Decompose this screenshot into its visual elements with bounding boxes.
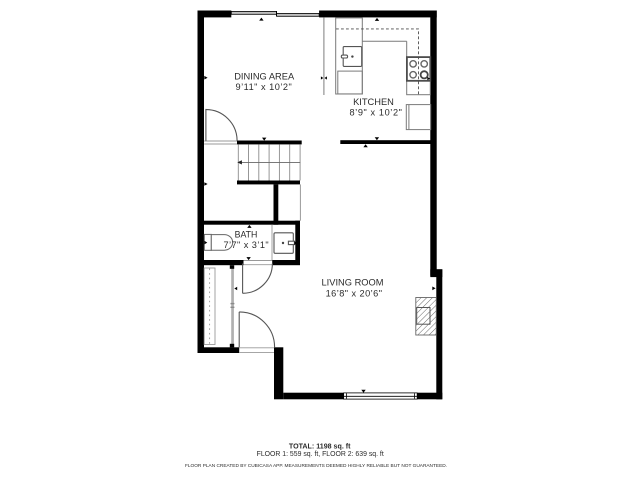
svg-text:BATH: BATH — [235, 230, 258, 240]
svg-text:TOTAL: 1198 sq. ft: TOTAL: 1198 sq. ft — [289, 443, 351, 451]
svg-text:DINING AREA: DINING AREA — [234, 71, 295, 81]
svg-text:KITCHEN: KITCHEN — [353, 97, 394, 107]
svg-text:9’11" x 10’2": 9’11" x 10’2" — [236, 82, 293, 92]
svg-text:16’8" x 20’6": 16’8" x 20’6" — [326, 288, 383, 298]
svg-text:FLOOR 1: 559 sq. ft, FLOOR 2:: FLOOR 1: 559 sq. ft, FLOOR 2: 639 sq. ft — [257, 451, 384, 458]
svg-text:LIVING ROOM: LIVING ROOM — [322, 278, 384, 288]
svg-text:7’7" x 3’1": 7’7" x 3’1" — [223, 240, 269, 250]
svg-text:FLOOR PLAN CREATED BY CUBICASA: FLOOR PLAN CREATED BY CUBICASA APP. MEAS… — [185, 463, 447, 469]
svg-text:8’9" x 10’2": 8’9" x 10’2" — [349, 108, 402, 118]
